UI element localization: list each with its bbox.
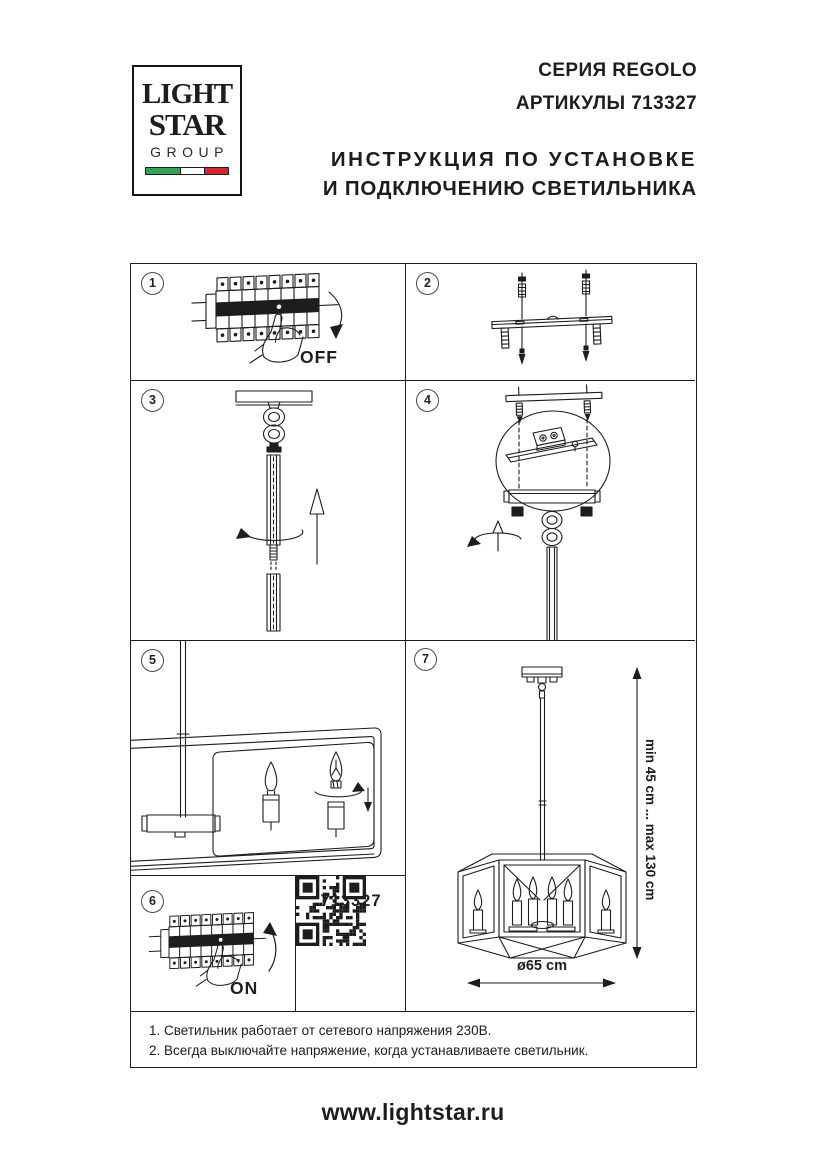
chain-link-icon: [542, 512, 562, 546]
height-dimension-arrow: [633, 667, 642, 959]
logo-word-light: LIGHT: [134, 79, 240, 109]
logo-word-star: STAR: [134, 109, 240, 140]
candle-bulb-icon: [548, 877, 557, 925]
candle-bulb-icon: [529, 877, 538, 925]
diameter-dimension-arrow: [467, 979, 616, 988]
rotate-arrow-icon: [236, 528, 303, 540]
qr-panel: 713327: [296, 876, 406, 1011]
candle-bulb-icon: [263, 762, 279, 830]
step-5-panel: 5: [131, 641, 406, 876]
step-number-badge: 7: [414, 648, 437, 671]
logo-word-group: GROUP: [139, 144, 240, 160]
italian-flag-icon: [145, 167, 229, 175]
wall-anchor-icon: [593, 324, 601, 344]
arrow-up-icon: [263, 922, 277, 971]
step-number-badge: 4: [416, 389, 439, 412]
step-number-badge: 3: [141, 389, 164, 412]
flag-green-stripe: [146, 168, 180, 174]
step-4-panel: 4: [406, 381, 695, 641]
rotate-arrow-icon: [467, 533, 521, 547]
step-1-panel: 1: [131, 264, 406, 381]
step-number-badge: 5: [141, 649, 164, 672]
arrow-up-icon: [493, 521, 503, 551]
breaker-off-illustration: [131, 264, 406, 381]
flag-red-stripe: [205, 168, 228, 174]
install-bulbs-illustration: [131, 641, 406, 876]
candle-bulb-icon: [328, 752, 344, 837]
step-3-panel: 3: [131, 381, 406, 641]
wall-anchor-icon: [501, 328, 509, 348]
step-6-panel: 6: [131, 876, 296, 1011]
step-number-badge: 1: [141, 272, 164, 295]
cage-frame: [458, 854, 626, 958]
note-line-1: 1. Светильник работает от сетевого напря…: [149, 1021, 695, 1041]
diameter-label: ø65 cm: [496, 958, 588, 974]
step-2-panel: 2: [406, 264, 695, 381]
off-label: OFF: [300, 347, 338, 368]
series-label: СЕРИЯ REGOLO: [300, 60, 697, 82]
arrow-down-icon: [329, 292, 343, 339]
qr-code: [296, 876, 366, 946]
center-hub: [142, 815, 220, 837]
on-label: ON: [230, 978, 258, 999]
height-range-label: min 45 cm ... max 130 cm: [643, 739, 658, 907]
note-line-2: 2. Всегда выключайте напряжение, когда у…: [149, 1041, 695, 1061]
website-url: www.lightstar.ru: [0, 1099, 826, 1126]
step-number-badge: 6: [141, 890, 164, 913]
arrow-up-icon: [310, 489, 324, 564]
header: СЕРИЯ REGOLO АРТИКУЛЫ 713327 ИНСТРУКЦИЯ …: [300, 60, 697, 201]
notes-panel: 1. Светильник работает от сетевого напря…: [131, 1011, 695, 1066]
flag-white-stripe: [180, 168, 205, 174]
candle-bulb-icon: [470, 890, 486, 933]
rotate-arrow-icon: [315, 782, 365, 797]
lightstar-logo: LIGHT STAR GROUP: [132, 65, 242, 196]
chain-link-icon: [264, 408, 285, 443]
terminal-connection-illustration: [406, 381, 695, 641]
candle-bulb-icon: [564, 879, 573, 925]
screw-icon: [519, 273, 526, 365]
screw-icon: [583, 270, 590, 362]
step-7-panel: 7: [406, 641, 695, 1011]
instruction-leaflet: LIGHT STAR GROUP СЕРИЯ REGOLO АРТИКУЛЫ 7…: [0, 0, 826, 1169]
rod-assembly-illustration: [131, 381, 406, 641]
zoom-balloon: [496, 411, 610, 511]
candle-bulb-icon: [598, 890, 614, 933]
mounting-bracket-illustration: [406, 264, 695, 381]
terminal-block-icon: [533, 428, 578, 452]
step-number-badge: 2: [416, 272, 439, 295]
instruction-grid: 1: [130, 263, 697, 1068]
arrow-down-icon: [364, 788, 372, 812]
page-title-line2: И ПОДКЛЮЧЕНИЮ СВЕТИЛЬНИКА: [300, 177, 697, 201]
article-label: АРТИКУЛЫ 713327: [300, 93, 697, 115]
page-title-line1: ИНСТРУКЦИЯ ПО УСТАНОВКЕ: [300, 148, 697, 172]
candle-bulb-icon: [513, 879, 522, 925]
